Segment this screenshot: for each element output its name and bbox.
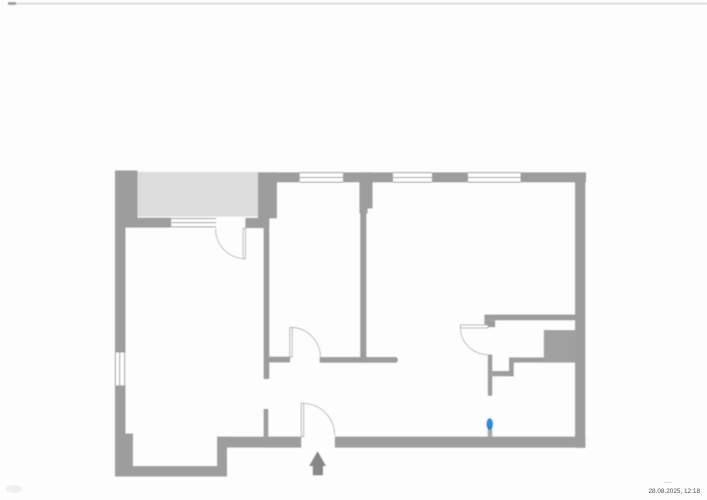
svg-text:28.08.2025, 12:18: 28.08.2025, 12:18 bbox=[648, 488, 700, 495]
